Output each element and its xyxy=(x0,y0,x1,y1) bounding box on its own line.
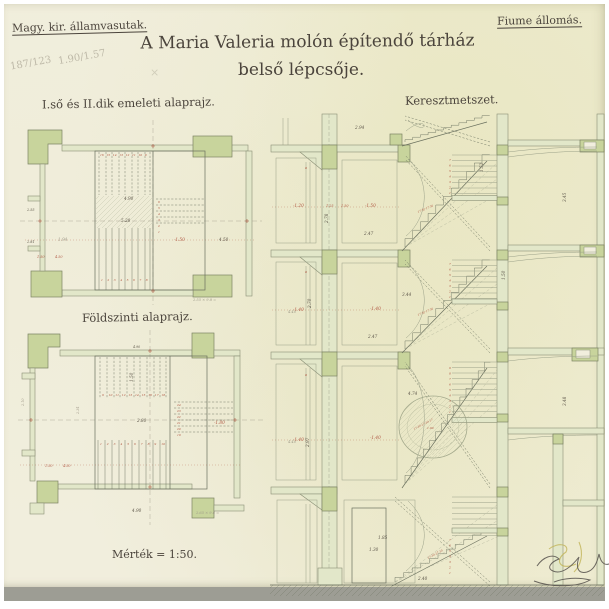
svg-text:7: 7 xyxy=(449,262,451,266)
svg-text:-1.40: -1.40 xyxy=(370,435,381,440)
ground-floor-plan: 1.502.80-1.804.904.902.65 × 9.6 =2.342.1… xyxy=(18,330,265,525)
svg-text:2.94: 2.94 xyxy=(354,125,365,130)
svg-text:2.78: 2.78 xyxy=(324,213,329,224)
section-label: Keresztmetszet. xyxy=(405,92,499,108)
svg-text:-1.40: -1.40 xyxy=(370,306,381,311)
svg-text:1.50: 1.50 xyxy=(129,372,134,382)
svg-text:1.25: 1.25 xyxy=(326,204,334,208)
svg-text:-1.50: -1.50 xyxy=(365,203,376,208)
svg-text:1.85: 1.85 xyxy=(378,535,388,540)
svg-text:2.65 × 9.6 =: 2.65 × 9.6 = xyxy=(195,511,219,515)
svg-text:8: 8 xyxy=(146,278,148,282)
scanned-drawing-sheet: 4.905.281.94-1.504.502.552.811.504.502.5… xyxy=(0,0,609,609)
svg-text:-1.20: -1.20 xyxy=(293,203,304,208)
svg-text:3.48: 3.48 xyxy=(562,396,567,406)
svg-text:10: 10 xyxy=(161,442,165,446)
floor-level-mezzanine xyxy=(271,352,410,377)
svg-text:6: 6 xyxy=(133,278,135,282)
svg-text:3: 3 xyxy=(449,399,451,403)
svg-text:14: 14 xyxy=(135,393,139,397)
svg-text:16: 16 xyxy=(148,393,152,397)
svg-text:20: 20 xyxy=(176,427,181,431)
svg-text:4.90: 4.90 xyxy=(123,196,134,201)
svg-text:8: 8 xyxy=(148,442,150,446)
cross-section: 2.942.702.782.472.473.444.742.971.851.30… xyxy=(270,114,604,596)
svg-text:1: 1 xyxy=(449,191,451,195)
svg-text:-1.80: -1.80 xyxy=(214,420,225,425)
svg-text:2.70: 2.70 xyxy=(307,298,312,309)
svg-text:3: 3 xyxy=(449,180,451,184)
svg-text:21: 21 xyxy=(176,421,181,425)
svg-text:16: 16 xyxy=(100,153,104,157)
svg-text:2: 2 xyxy=(106,442,109,446)
svg-text:1.94: 1.94 xyxy=(58,237,68,242)
svg-text:4: 4 xyxy=(119,442,122,446)
svg-text:1: 1 xyxy=(449,571,451,575)
svg-text:7: 7 xyxy=(449,538,451,542)
title-line-1: A Maria Valeria molón építendő tárház xyxy=(135,30,480,53)
svg-text:6: 6 xyxy=(158,200,160,204)
svg-text:2.55 × 9.8 =: 2.55 × 9.8 = xyxy=(192,298,216,302)
svg-text:13: 13 xyxy=(128,393,132,397)
svg-text:3: 3 xyxy=(158,218,160,222)
svg-text:8: 8 xyxy=(449,372,451,376)
svg-text:a: a xyxy=(305,270,307,274)
svg-text:12: 12 xyxy=(126,153,130,157)
svg-text:1.90: 1.90 xyxy=(427,426,434,430)
svg-text:15: 15 xyxy=(142,393,146,397)
svg-text:-1.50: -1.50 xyxy=(174,237,185,242)
svg-text:3: 3 xyxy=(114,442,116,446)
svg-text:4: 4 xyxy=(448,175,451,179)
svg-text:1: 1 xyxy=(158,230,160,234)
svg-text:2: 2 xyxy=(448,186,451,190)
svg-text:2: 2 xyxy=(448,290,451,294)
svg-text:12: 12 xyxy=(122,393,126,397)
svg-text:4.40: 4.40 xyxy=(287,310,297,314)
svg-text:7: 7 xyxy=(139,278,141,282)
svg-text:1: 1 xyxy=(449,295,451,299)
upper-floor-plan: 4.905.281.94-1.504.502.552.811.504.502.5… xyxy=(20,120,262,305)
svg-text:1: 1 xyxy=(101,278,103,282)
svg-text:2.47: 2.47 xyxy=(363,231,374,236)
svg-text:4.90: 4.90 xyxy=(132,345,140,349)
svg-text:17·30·17·30: 17·30·17·30 xyxy=(417,307,434,317)
station-label: Fiume állomás. xyxy=(497,13,582,27)
svg-text:9: 9 xyxy=(145,153,147,157)
floor-level-1 xyxy=(271,250,410,275)
svg-text:15: 15 xyxy=(106,153,110,157)
svg-text:1.50: 1.50 xyxy=(341,204,349,208)
svg-text:2: 2 xyxy=(157,224,160,228)
svg-text:6: 6 xyxy=(449,268,451,272)
svg-text:4.40: 4.40 xyxy=(287,440,297,444)
svg-text:14: 14 xyxy=(113,153,117,157)
svg-text:23: 23 xyxy=(176,409,181,413)
svg-text:7: 7 xyxy=(449,158,451,162)
left-rooms xyxy=(276,158,317,583)
svg-text:5: 5 xyxy=(449,273,451,277)
svg-text:5: 5 xyxy=(127,278,129,282)
svg-text:9: 9 xyxy=(102,393,104,397)
svg-text:1.30: 1.30 xyxy=(369,547,379,552)
svg-text:6: 6 xyxy=(449,164,451,168)
svg-text:11: 11 xyxy=(132,153,136,157)
svg-text:13: 13 xyxy=(119,153,123,157)
svg-text:1.50: 1.50 xyxy=(37,255,45,259)
right-rooms xyxy=(508,140,604,585)
svg-text:1: 1 xyxy=(449,410,451,414)
svg-text:7: 7 xyxy=(449,377,451,381)
svg-text:a: a xyxy=(305,373,307,377)
svg-text:17: 17 xyxy=(155,393,159,397)
svg-text:5: 5 xyxy=(449,169,451,173)
svg-text:6: 6 xyxy=(449,383,451,387)
svg-text:18: 18 xyxy=(161,393,165,397)
stairwell-rooms xyxy=(342,160,415,583)
svg-text:10: 10 xyxy=(109,393,113,397)
svg-text:10: 10 xyxy=(138,153,142,157)
svg-text:1: 1 xyxy=(100,442,102,446)
svg-text:2.47: 2.47 xyxy=(367,334,378,339)
svg-text:19: 19 xyxy=(177,433,181,437)
svg-text:2.34: 2.34 xyxy=(76,406,80,415)
stair-flights xyxy=(392,116,497,586)
svg-text:3: 3 xyxy=(114,278,116,282)
svg-text:1.50: 1.50 xyxy=(45,464,53,468)
svg-text:5.28: 5.28 xyxy=(121,218,131,223)
svg-text:3.44: 3.44 xyxy=(402,292,412,297)
drawing-canvas: 4.905.281.94-1.504.502.552.811.504.502.5… xyxy=(0,0,609,609)
svg-text:3.45: 3.45 xyxy=(562,192,567,202)
svg-text:17·30·17·30: 17·30·17·30 xyxy=(417,204,434,214)
pencil-mark: × xyxy=(150,66,159,79)
svg-text:4.90: 4.90 xyxy=(131,508,142,513)
svg-text:5: 5 xyxy=(127,442,129,446)
svg-text:4: 4 xyxy=(157,212,160,216)
svg-text:2: 2 xyxy=(448,566,451,570)
scale-label: Mérték = 1:50. xyxy=(112,548,197,561)
svg-text:4.50: 4.50 xyxy=(54,255,63,259)
svg-text:2.80: 2.80 xyxy=(136,418,147,423)
svg-text:2.10: 2.10 xyxy=(21,398,25,407)
svg-text:11: 11 xyxy=(115,393,119,397)
svg-text:a: a xyxy=(305,166,307,170)
svg-text:4: 4 xyxy=(119,278,122,282)
svg-text:3: 3 xyxy=(449,560,451,564)
floor-level-2 xyxy=(271,134,410,170)
svg-text:2.40: 2.40 xyxy=(417,576,428,581)
svg-text:2: 2 xyxy=(448,405,451,409)
svg-text:2.81: 2.81 xyxy=(26,240,35,244)
title-line-2: belső lépcsője. xyxy=(238,60,364,80)
svg-text:7: 7 xyxy=(141,442,143,446)
svg-text:4.74: 4.74 xyxy=(407,391,418,396)
svg-text:4.50: 4.50 xyxy=(218,237,229,242)
svg-text:3: 3 xyxy=(449,284,451,288)
svg-text:22: 22 xyxy=(176,415,181,419)
svg-text:5: 5 xyxy=(449,388,451,392)
svg-text:24: 24 xyxy=(176,403,181,407)
svg-text:6: 6 xyxy=(134,442,136,446)
svg-text:4: 4 xyxy=(448,555,451,559)
svg-text:4.50: 4.50 xyxy=(62,464,71,468)
svg-text:2: 2 xyxy=(106,278,109,282)
svg-text:5: 5 xyxy=(449,549,451,553)
svg-text:2.55: 2.55 xyxy=(26,208,35,212)
svg-text:6: 6 xyxy=(449,544,451,548)
svg-text:9: 9 xyxy=(449,366,451,370)
svg-text:9: 9 xyxy=(154,442,156,446)
ground-plan-label: Földszinti alaprajz. xyxy=(82,309,193,325)
svg-text:4: 4 xyxy=(448,394,451,398)
svg-text:2.97: 2.97 xyxy=(305,437,310,448)
svg-text:4: 4 xyxy=(448,279,451,283)
svg-text:1.50: 1.50 xyxy=(501,270,506,280)
ground-hatch xyxy=(270,585,604,596)
svg-text:1.52: 1.52 xyxy=(479,162,484,172)
svg-text:5: 5 xyxy=(158,206,160,210)
